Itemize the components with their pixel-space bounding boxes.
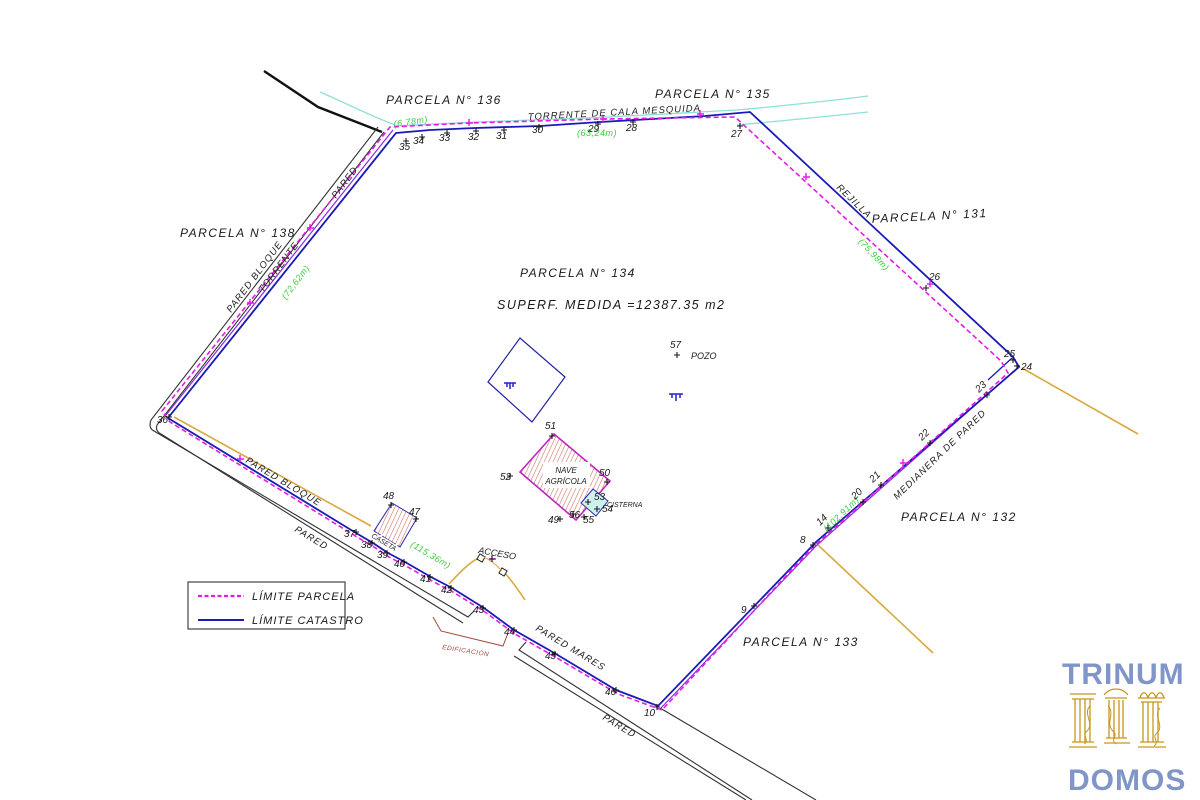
vertex-label: 30 <box>532 125 544 136</box>
vertex-label: 25 <box>1003 349 1016 360</box>
parcel-label: PARCELA N° 136 <box>386 93 502 107</box>
diamond-structure-shape <box>488 338 565 422</box>
logo: TRINUM DOMOS <box>1062 658 1186 797</box>
pozo-label: POZO <box>691 351 717 361</box>
vertex-label: 49 <box>548 515 560 526</box>
vertex-label: 51 <box>545 421 556 432</box>
vertex-label: 28 <box>625 123 638 134</box>
vertex-label: 55 <box>583 515 595 526</box>
vertex-label: 10 <box>644 708 656 719</box>
vertex-label: 31 <box>496 131 507 142</box>
vertex-label: 9 <box>741 605 747 616</box>
vertex-label: 52 <box>500 472 512 483</box>
nave-label-line2: AGRÍCOLA <box>544 477 586 486</box>
vertex-label: 53 <box>594 492 606 503</box>
road-lines <box>150 71 816 800</box>
parcel-label: PARCELA N° 135 <box>655 87 771 101</box>
vertex-label: 57 <box>670 340 682 351</box>
wall-single <box>660 708 816 800</box>
vertex-label: 43 <box>473 605 485 616</box>
wall-label: PARED BLOQUE <box>243 455 323 509</box>
vertex-label: 39 <box>377 550 389 561</box>
column-icon <box>1069 689 1166 747</box>
vertex-label: 35 <box>399 142 411 153</box>
vertex-label: 48 <box>383 491 395 502</box>
vertex-label: 32 <box>468 132 480 143</box>
vertex-cross-icon <box>923 285 929 291</box>
vertex-label: 24 <box>1020 362 1033 373</box>
vertex-label: 44 <box>504 627 516 638</box>
vertex-label: 34 <box>413 136 425 147</box>
measurement-label: (6,78m) <box>393 114 429 129</box>
wall-label: TORRENTE DE CALA MESQUIDA <box>528 103 702 123</box>
vertex-label: 37 <box>344 529 356 540</box>
parcel-label: PARCELA N° 132 <box>901 510 1017 524</box>
vertex-label: 26 <box>928 272 941 283</box>
parcel-label: PARCELA N° 138 <box>180 226 296 240</box>
vertex-label: 38 <box>361 540 373 551</box>
cisterna-label: CISTERNA <box>607 502 643 509</box>
vertex-label: 36 <box>157 415 169 426</box>
parcel-label: PARCELA N° 134 <box>520 266 636 280</box>
wall-thick <box>264 71 382 132</box>
wall-label: REJILLA <box>834 182 874 221</box>
vertex-label: 56 <box>569 510 581 521</box>
vertex-label: 50 <box>599 468 611 479</box>
legend: LÍMITE PARCELA LÍMITE CATASTRO <box>188 582 364 629</box>
vertex-label: 33 <box>439 133 451 144</box>
vertex-label: 29 <box>587 124 600 135</box>
vertex-cross-icon <box>674 352 680 358</box>
legend-item-catastro: LÍMITE CATASTRO <box>252 614 364 627</box>
vertex-label: 45 <box>545 651 557 662</box>
vertex-label: 40 <box>394 559 406 570</box>
legend-item-parcela: LÍMITE PARCELA <box>252 590 355 603</box>
logo-line2: DOMOS <box>1068 764 1186 797</box>
vertex-label: 27 <box>730 129 743 140</box>
vertex-label: 42 <box>441 585 453 596</box>
edificacion-label: EDIFICACIÓN <box>442 642 490 658</box>
vertex-label: 8 <box>800 535 806 546</box>
vertex-label: 46 <box>605 687 617 698</box>
parcel-label: PARCELA N° 133 <box>743 635 859 649</box>
logo-line1: TRINUM <box>1062 658 1185 691</box>
nave-label-line1: NAVE <box>555 466 577 475</box>
survey-plan: PARCELA N° 136PARCELA N° 135PARCELA N° 1… <box>0 0 1200 800</box>
parcel-label: PARCELA N° 131 <box>871 206 987 226</box>
wall-label: PARED <box>600 712 637 741</box>
measurement-label: (115,36m) <box>409 539 453 571</box>
vertex-label: 47 <box>409 507 421 518</box>
wall-label: MEDIANERA DE PARED <box>891 408 988 502</box>
plan-drawing: PARCELA N° 136PARCELA N° 135PARCELA N° 1… <box>0 0 1200 800</box>
survey-symbol-icon <box>504 383 683 401</box>
superf-medida-text: SUPERF. MEDIDA =12387.35 m2 <box>497 298 725 312</box>
vertex-label: 41 <box>420 574 431 585</box>
